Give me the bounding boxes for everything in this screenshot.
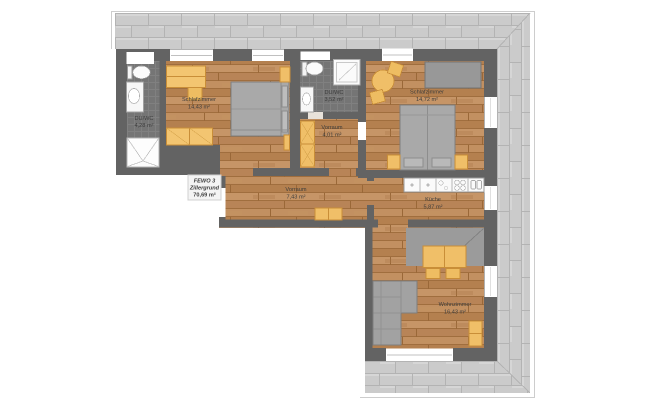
svg-text:FEWO 3: FEWO 3 [194, 178, 216, 184]
svg-text:Zillergrund: Zillergrund [189, 186, 220, 192]
svg-text:3,52 m²: 3,52 m² [325, 97, 344, 103]
svg-text:4,01 m²: 4,01 m² [323, 133, 342, 139]
svg-text:Schlafzimmer: Schlafzimmer [182, 97, 216, 103]
svg-text:5,87 m²: 5,87 m² [424, 205, 443, 211]
svg-text:70,69 m²: 70,69 m² [193, 192, 216, 199]
svg-text:Küche: Küche [425, 197, 441, 203]
svg-text:14,43 m²: 14,43 m² [188, 105, 210, 111]
svg-text:Vorraum: Vorraum [321, 125, 342, 131]
svg-text:Vorraum: Vorraum [285, 187, 306, 193]
svg-text:16,43 m²: 16,43 m² [444, 310, 466, 316]
svg-text:Wohnzimmer: Wohnzimmer [439, 302, 472, 308]
svg-text:DU/WC: DU/WC [135, 116, 154, 122]
svg-text:DU/WC: DU/WC [325, 90, 344, 96]
svg-text:7,43 m²: 7,43 m² [287, 195, 306, 201]
svg-text:Schlafzimmer: Schlafzimmer [410, 90, 444, 96]
svg-text:4,28 m²: 4,28 m² [135, 123, 154, 129]
svg-text:14,72 m²: 14,72 m² [416, 97, 438, 103]
